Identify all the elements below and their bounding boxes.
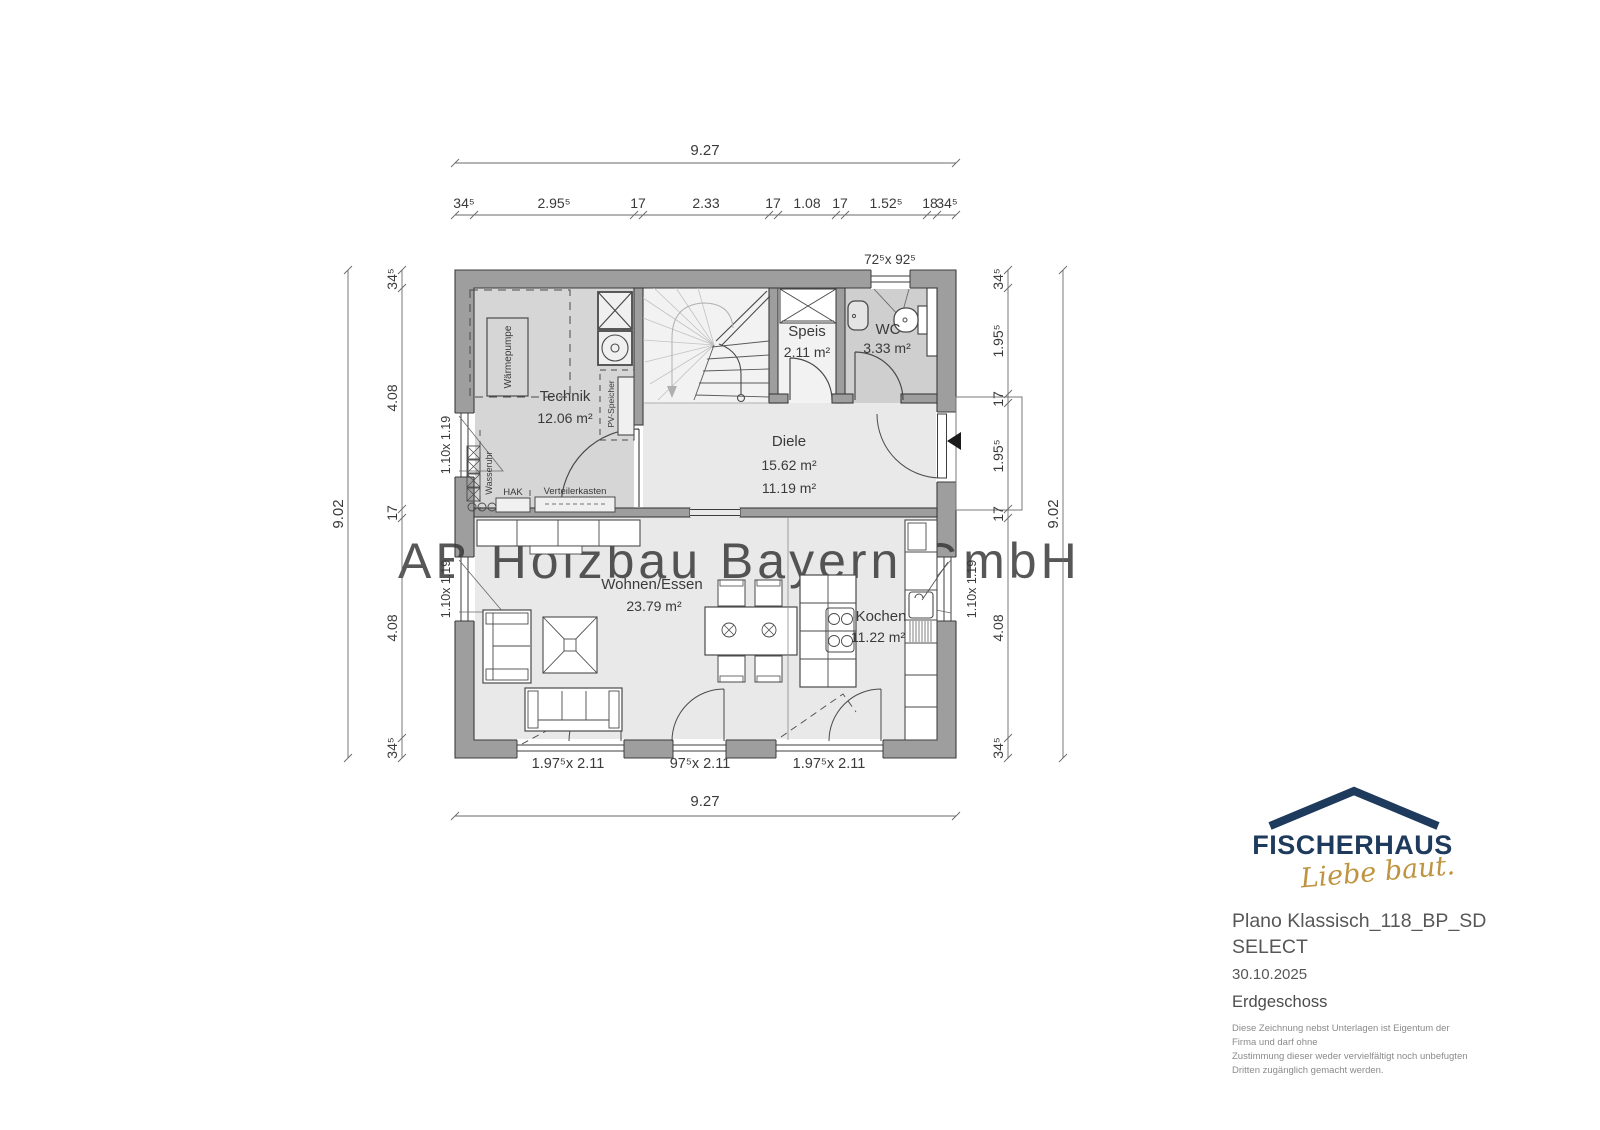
disclaimer-line: Firma und darf ohne [1232,1036,1468,1050]
dim-door-br: 1.97⁵x 2.11 [793,756,866,772]
label-waermepumpe: Wärmepumpe [503,325,514,388]
label-wasseruhr: Wasseruhr [484,451,494,494]
dim-top-9: 34⁵ [936,195,957,211]
dim-right-3: 1.95⁵ [990,439,1006,472]
room-label-speis: Speis [788,323,826,340]
room-area-wohnen: 23.79 m² [626,598,682,614]
room-area-diele-2: 11.19 m² [762,480,817,496]
room-label-technik: Technik [540,388,591,405]
dim-left-2: 17 [384,505,400,521]
dim-top-total: 9.27 [690,142,719,159]
dim-window-r: 1.10x 1.19 [965,560,979,618]
dim-wc-window: 72⁵x 92⁵ [864,252,916,267]
dim-door-bl: 1.97⁵x 2.11 [532,756,605,772]
fischerhaus-roof-icon [1266,784,1446,832]
plan-disclaimer: Diese Zeichnung nebst Unterlagen ist Eig… [1232,1022,1468,1078]
dim-window-lt: 1.10x 1.19 [439,416,453,474]
dim-top-3: 2.33 [692,195,719,211]
dim-top-7: 1.52⁵ [869,195,902,211]
plan-title: Plano Klassisch_118_BP_SD SELECT [1232,908,1486,960]
dim-right-5: 4.08 [990,614,1006,641]
dim-top-2: 17 [630,195,646,211]
dim-right-0: 34⁵ [990,268,1006,289]
room-area-wc: 3.33 m² [863,340,911,356]
dim-right-4: 17 [990,506,1006,522]
dim-right-2: 17 [990,391,1006,407]
passage-diele-wohnen [690,508,740,517]
room-area-technik: 12.06 m² [537,410,593,426]
plan-floor-label: Erdgeschoss [1232,993,1327,1012]
disclaimer-line: Dritten zugänglich gemacht werden. [1232,1064,1468,1078]
disclaimer-line: Zustimmung dieser weder vervielfältigt n… [1232,1050,1468,1064]
dim-right-6: 34⁵ [990,737,1006,758]
dim-left-total: 9.02 [330,499,347,528]
dim-door-bm: 97⁵x 2.11 [670,756,731,772]
dim-top-4: 17 [765,195,781,211]
dim-right-1: 1.95⁵ [990,324,1006,357]
disclaimer-line: Diese Zeichnung nebst Unterlagen ist Eig… [1232,1022,1468,1036]
label-hak: HAK [503,487,523,498]
dim-bottom-total: 9.27 [690,793,719,810]
room-label-wohnen: Wohnen/Essen [601,576,702,593]
floor-plan-drawing: AB Holzbau Bayern GmbH [0,0,1600,1130]
dim-right-total: 9.02 [1045,499,1062,528]
floor-plan-page: AB Holzbau Bayern GmbH [0,0,1600,1130]
dim-top-5: 1.08 [793,195,820,211]
dim-left-4: 34⁵ [384,737,400,758]
plan-date: 30.10.2025 [1232,966,1307,983]
dim-top-6: 17 [832,195,848,211]
dim-top-0: 34⁵ [453,195,474,211]
room-area-kochen: 11.22 m² [851,629,906,645]
room-area-diele-1: 15.62 m² [761,457,817,473]
dim-top-1: 2.95⁵ [537,195,570,211]
entrance-porch [956,397,1022,510]
room-label-wc: WC [876,321,901,338]
room-label-diele: Diele [772,433,806,450]
dim-left-3: 4.08 [384,614,400,641]
label-verteilerkasten: Verteilerkasten [544,486,607,497]
dim-left-1: 4.08 [384,384,400,411]
dim-window-lb: 1.10x 1.19 [439,560,453,618]
dim-left-0: 34⁵ [384,268,400,289]
plan-title-line1: Plano Klassisch_118_BP_SD [1232,908,1486,934]
label-pv-speicher: PV-Speicher [606,380,616,427]
room-label-kochen: Kochen [856,608,907,625]
room-area-speis: 2.11 m² [784,344,831,360]
plan-title-line2: SELECT [1232,934,1486,960]
